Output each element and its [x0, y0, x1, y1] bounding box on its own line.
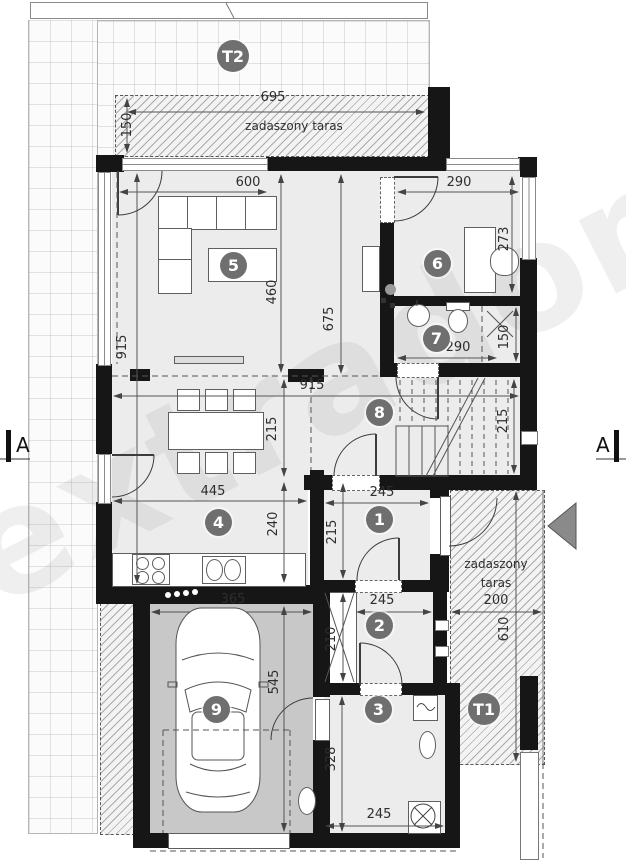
- dim-living-depth-2: 675: [323, 299, 337, 339]
- room-7-badge: 7: [423, 325, 450, 352]
- dim-room2-width: 245: [362, 594, 402, 608]
- room-8-badge: 8: [366, 399, 393, 426]
- room-5-badge: 5: [220, 252, 247, 279]
- dim-terrace-right-depth: 610: [498, 609, 512, 649]
- dim-garage-depth: 545: [268, 662, 282, 702]
- dim-living-width: 600: [228, 176, 268, 190]
- dim-room3-depth: 328: [325, 739, 339, 779]
- room-6-badge: 6: [424, 250, 451, 277]
- room-3-badge: 3: [365, 696, 392, 723]
- roof-tick: [226, 3, 234, 18]
- dim-room7-depth: 150: [498, 317, 512, 357]
- room-9-badge: 9: [203, 696, 230, 723]
- section-label-left: A: [16, 433, 30, 457]
- staircase: [396, 378, 508, 476]
- floor-drain-icon: [411, 804, 435, 828]
- floor-plan: extradom: [0, 0, 626, 860]
- dim-hall-width: 915: [292, 379, 332, 393]
- entrance-arrow-icon: [548, 503, 576, 549]
- dim-terrace-width: 695: [253, 91, 293, 105]
- dim-room6-depth: 273: [498, 219, 512, 259]
- lintel-dots: [165, 589, 198, 598]
- dim-garage-width: 365: [213, 593, 253, 607]
- terrace-top-label: zadaszony taras: [234, 119, 354, 133]
- dim-terrace-right-width: 200: [476, 594, 516, 608]
- terrace-right-label-2: taras: [446, 576, 546, 590]
- dim-room3-width: 245: [359, 808, 399, 822]
- terrace-t1-badge: T1: [468, 693, 500, 725]
- dim-terrace-depth: 150: [121, 105, 135, 145]
- room-4-badge: 4: [205, 509, 232, 536]
- terrace-t2-badge: T2: [217, 40, 249, 72]
- dim-kitchen-depth: 240: [267, 504, 281, 544]
- meter-mark: [381, 298, 386, 303]
- section-marker-bar-left: [6, 430, 11, 462]
- room-2-badge: 2: [366, 612, 393, 639]
- meter-mark: [390, 303, 395, 308]
- boiler-symbol: [417, 704, 435, 711]
- dim-kitchen-width: 445: [193, 485, 233, 499]
- dim-room1-depth: 215: [326, 512, 340, 552]
- dim-hall-depth: 215: [497, 401, 511, 441]
- dim-room1-width: 245: [362, 486, 402, 500]
- dim-dining-depth: 215: [266, 409, 280, 449]
- dim-room2-depth: 210: [325, 619, 339, 659]
- section-marker-bar-right: [614, 430, 619, 462]
- dim-left-total: 915: [116, 327, 130, 367]
- dim-living-depth: 460: [266, 272, 280, 312]
- room-1-badge: 1: [366, 506, 393, 533]
- terrace-right-label-1: zadaszony: [446, 557, 546, 571]
- dim-room6-width: 290: [439, 176, 479, 190]
- section-label-right: A: [596, 433, 610, 457]
